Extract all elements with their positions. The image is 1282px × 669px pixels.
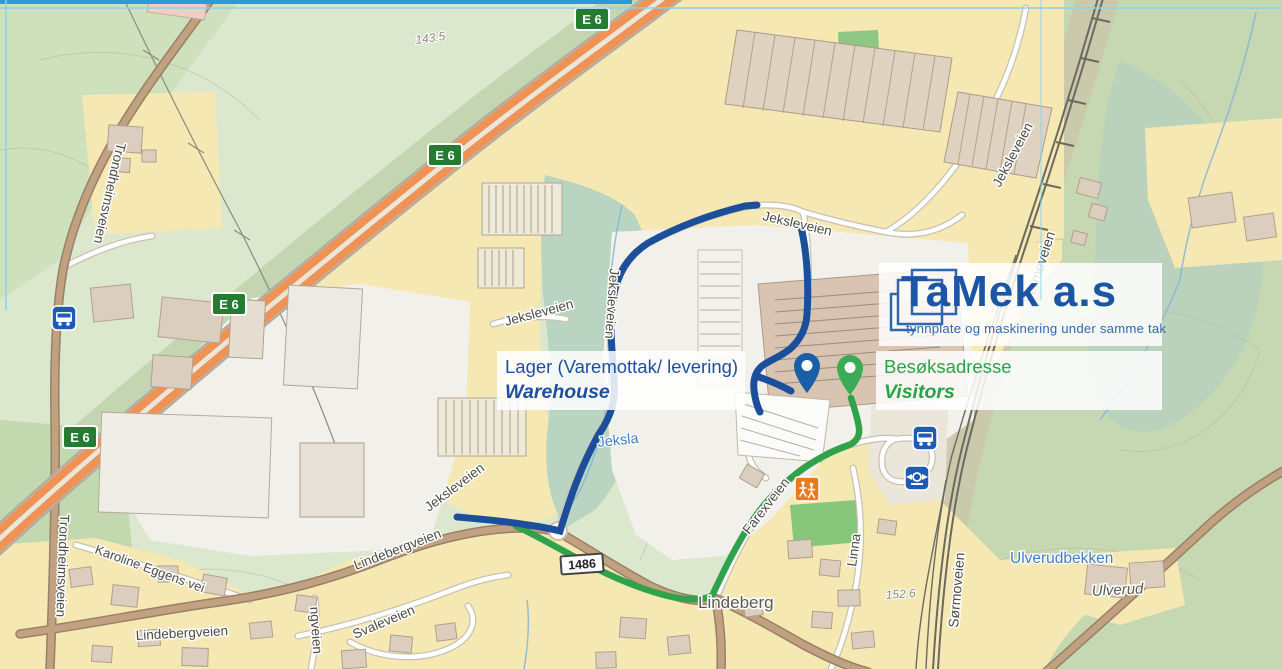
e6-shield: E 6 [428,144,462,166]
water-label-ulverudbekken: Ulverudbekken [1010,550,1113,567]
bus-stop-icon [913,426,937,450]
e6-shield: E 6 [212,293,246,315]
warehouse-label-norwegian: Lager (Varemottak/ levering) [505,356,738,378]
svg-text:1486: 1486 [568,557,597,573]
place-label-lindeberg: Lindeberg [698,593,774,612]
svg-text:E 6: E 6 [70,430,90,445]
graticule-vertical-left [5,0,7,310]
logo-tagline: tynnplate og maskinering under samme tak [906,321,1166,336]
graticule-horizontal [0,7,1282,9]
place-label-ulverud: Ulverud [1091,580,1144,600]
bus-stop-icon [52,306,76,330]
tamek-logo: TaMek a.s tynnplate og maskinering under… [879,263,1162,346]
pedestrian-crossing-icon [795,477,819,501]
svg-text:E 6: E 6 [219,297,239,312]
warehouse-label-english: Warehouse [505,381,610,404]
e6-shield: E 6 [63,426,97,448]
warehouse-label: Lager (Varemottak/ levering) Warehouse [497,351,745,410]
visitors-label-english: Visitors [884,381,955,404]
e6-shield: E 6 [575,8,609,30]
map-screenshot: E 6 E 6 E 6 E 6 1486 [0,0,1282,669]
elevation-152: 152.6 [885,586,916,602]
map-edge-bar [0,0,632,4]
road-1486-shield: 1486 [560,554,603,575]
visitors-label: Besøksadresse Visitors [876,351,1162,410]
visitors-label-norwegian: Besøksadresse [884,356,1012,378]
svg-text:E 6: E 6 [582,12,602,27]
graticule-vertical-right [1040,0,1042,300]
train-station-icon [905,466,929,490]
svg-text:E 6: E 6 [435,148,455,163]
logo-company-name: TaMek a.s [901,267,1117,317]
